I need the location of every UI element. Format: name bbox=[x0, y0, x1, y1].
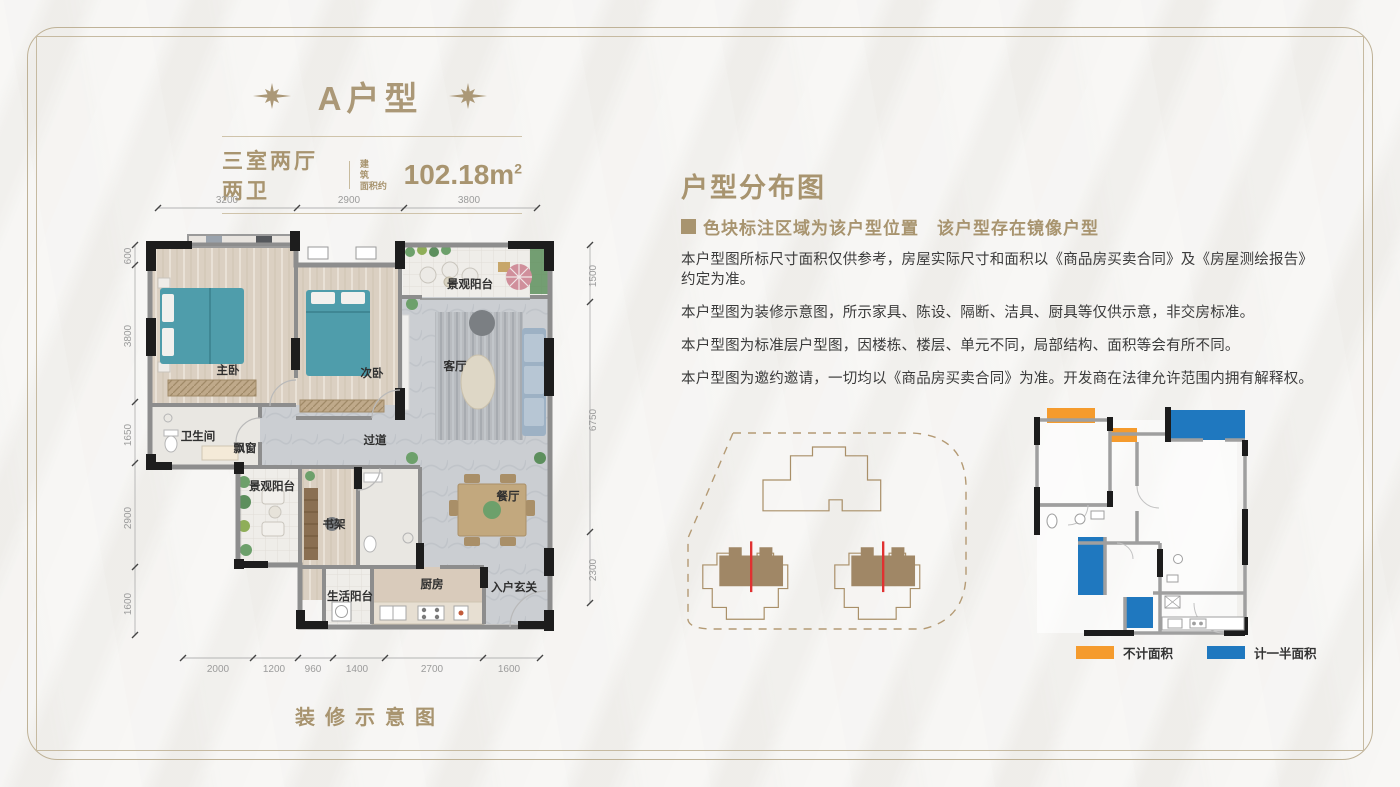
ac-platform bbox=[356, 247, 376, 259]
page-title: A户型 bbox=[318, 72, 423, 120]
color-block-icon bbox=[681, 219, 696, 234]
dim-label: 2900 bbox=[123, 506, 134, 529]
pillow bbox=[162, 294, 174, 322]
room-label: 次卧 bbox=[361, 366, 384, 380]
stove bbox=[418, 606, 444, 620]
room-label: 入户玄关 bbox=[491, 580, 537, 594]
sparkle-star-icon bbox=[448, 81, 488, 111]
room-label: 飘窗 bbox=[234, 441, 257, 455]
floor-plan: 飘窗 主卧 次卧 客厅 景观阳台 卫生间 过道 景观阳台 书架 餐厅 生活阳台 … bbox=[110, 190, 610, 695]
dim-label: 1600 bbox=[123, 592, 134, 615]
plant bbox=[406, 298, 418, 310]
blue-swatch bbox=[1207, 646, 1245, 659]
balcony-chair bbox=[420, 267, 436, 283]
room-label: 景观阳台 bbox=[248, 479, 295, 493]
dim-label: 1650 bbox=[123, 423, 134, 446]
pillow bbox=[311, 292, 335, 304]
sofa-cushion bbox=[524, 366, 544, 394]
balcony-table bbox=[269, 506, 281, 518]
dim-label: 1500 bbox=[588, 264, 599, 287]
legend-item: 计一半面积 bbox=[1207, 643, 1317, 662]
dim-label: 6750 bbox=[588, 408, 599, 431]
orange-swatch bbox=[1076, 646, 1114, 659]
nightstand bbox=[158, 278, 170, 288]
area-value: 102.18m2 bbox=[404, 159, 522, 191]
toilet bbox=[165, 436, 177, 452]
dim-label: 2000 bbox=[207, 664, 230, 675]
disclaimer-line: 本户型图所标尺寸面积仅供参考，房屋实际尺寸和面积以《商品房买卖合同》及《房屋测绘… bbox=[681, 250, 1326, 290]
armchair bbox=[469, 310, 495, 336]
divider bbox=[349, 161, 350, 189]
sofa-cushion bbox=[524, 334, 544, 362]
dim-label: 2300 bbox=[588, 558, 599, 581]
site-boundary bbox=[688, 433, 966, 629]
distribution-heading: 户型分布图 bbox=[681, 166, 826, 205]
dim-label: 1400 bbox=[346, 664, 369, 675]
dim-label: 3200 bbox=[216, 195, 239, 206]
disclaimer-line: 本户型图为装修示意图，所示家具、陈设、隔断、洁具、厨具等仅供示意，非交房标准。 bbox=[681, 303, 1326, 323]
building-with-unit bbox=[835, 541, 920, 619]
dim-label: 2900 bbox=[338, 195, 361, 206]
floor-plan-drawing: 飘窗 主卧 次卧 客厅 景观阳台 卫生间 过道 景观阳台 书架 餐厅 生活阳台 … bbox=[110, 190, 610, 695]
toilet bbox=[364, 536, 376, 552]
pillow bbox=[341, 292, 365, 304]
pillow bbox=[162, 328, 174, 356]
dim-label: 600 bbox=[123, 247, 134, 264]
building-outline-top bbox=[763, 447, 881, 511]
blue-area-life-balcony bbox=[1125, 597, 1153, 628]
dim-label: 3800 bbox=[123, 324, 134, 347]
distribution-note: 色块标注区域为该户型位置 该户型存在镜像户型 bbox=[681, 214, 1099, 239]
room-label: 客厅 bbox=[443, 359, 467, 373]
legend-item: 不计面积 bbox=[1076, 643, 1173, 662]
dim-label: 960 bbox=[305, 664, 322, 675]
building-with-unit bbox=[703, 541, 788, 619]
room-label: 景观阳台 bbox=[446, 277, 493, 291]
balcony-chair bbox=[262, 522, 284, 536]
balcony-chair bbox=[442, 262, 458, 278]
sparkle-star-icon bbox=[252, 81, 292, 111]
blue-area-top-balcony bbox=[1168, 410, 1245, 440]
washer bbox=[332, 602, 351, 621]
dim-label: 3800 bbox=[458, 195, 481, 206]
plant bbox=[534, 452, 546, 464]
room-label: 书架 bbox=[323, 517, 346, 531]
header: A户型 bbox=[170, 70, 570, 122]
room-label: 过道 bbox=[364, 433, 387, 447]
site-plan bbox=[683, 423, 975, 643]
centerpiece-plant bbox=[483, 501, 501, 519]
ac-platform bbox=[308, 247, 328, 259]
dim-label: 2700 bbox=[421, 664, 444, 675]
dim-label: 1200 bbox=[263, 664, 286, 675]
plant bbox=[406, 452, 418, 464]
entry-floor bbox=[484, 567, 550, 624]
dim-label: 1600 bbox=[498, 664, 521, 675]
wardrobe bbox=[300, 400, 384, 412]
room-label: 主卧 bbox=[217, 363, 240, 377]
area-legend: 不计面积 计一半面积 bbox=[1076, 643, 1317, 662]
disclaimer-line: 本户型图为邀约邀请，一切均以《商品房买卖合同》为准。开发商在法律允许范围内拥有解… bbox=[681, 369, 1326, 389]
blue-area-left-balcony bbox=[1078, 537, 1105, 595]
wardrobe bbox=[168, 380, 256, 396]
sofa-cushion bbox=[524, 398, 544, 426]
disclaimer-line: 本户型图为标准层户型图，因楼栋、楼层、单元不同，局部结构、面积等会有所不同。 bbox=[681, 336, 1326, 356]
room-label: 生活阳台 bbox=[327, 589, 373, 603]
area-label: 建 筑 面积约 bbox=[360, 159, 394, 192]
umbrella bbox=[506, 264, 532, 290]
room-label: 卫生间 bbox=[181, 429, 216, 443]
room-label: 厨房 bbox=[421, 577, 444, 591]
unit-area-plan bbox=[1028, 391, 1258, 639]
plan-caption: 装修示意图 bbox=[235, 701, 505, 730]
brochure-page: A户型 三室两厅两卫 建 筑 面积约 102.18m2 bbox=[0, 0, 1400, 787]
room-label: 餐厅 bbox=[496, 489, 520, 503]
disclaimer-text: 本户型图所标尺寸面积仅供参考，房屋实际尺寸和面积以《商品房买卖合同》及《房屋测绘… bbox=[681, 250, 1326, 402]
